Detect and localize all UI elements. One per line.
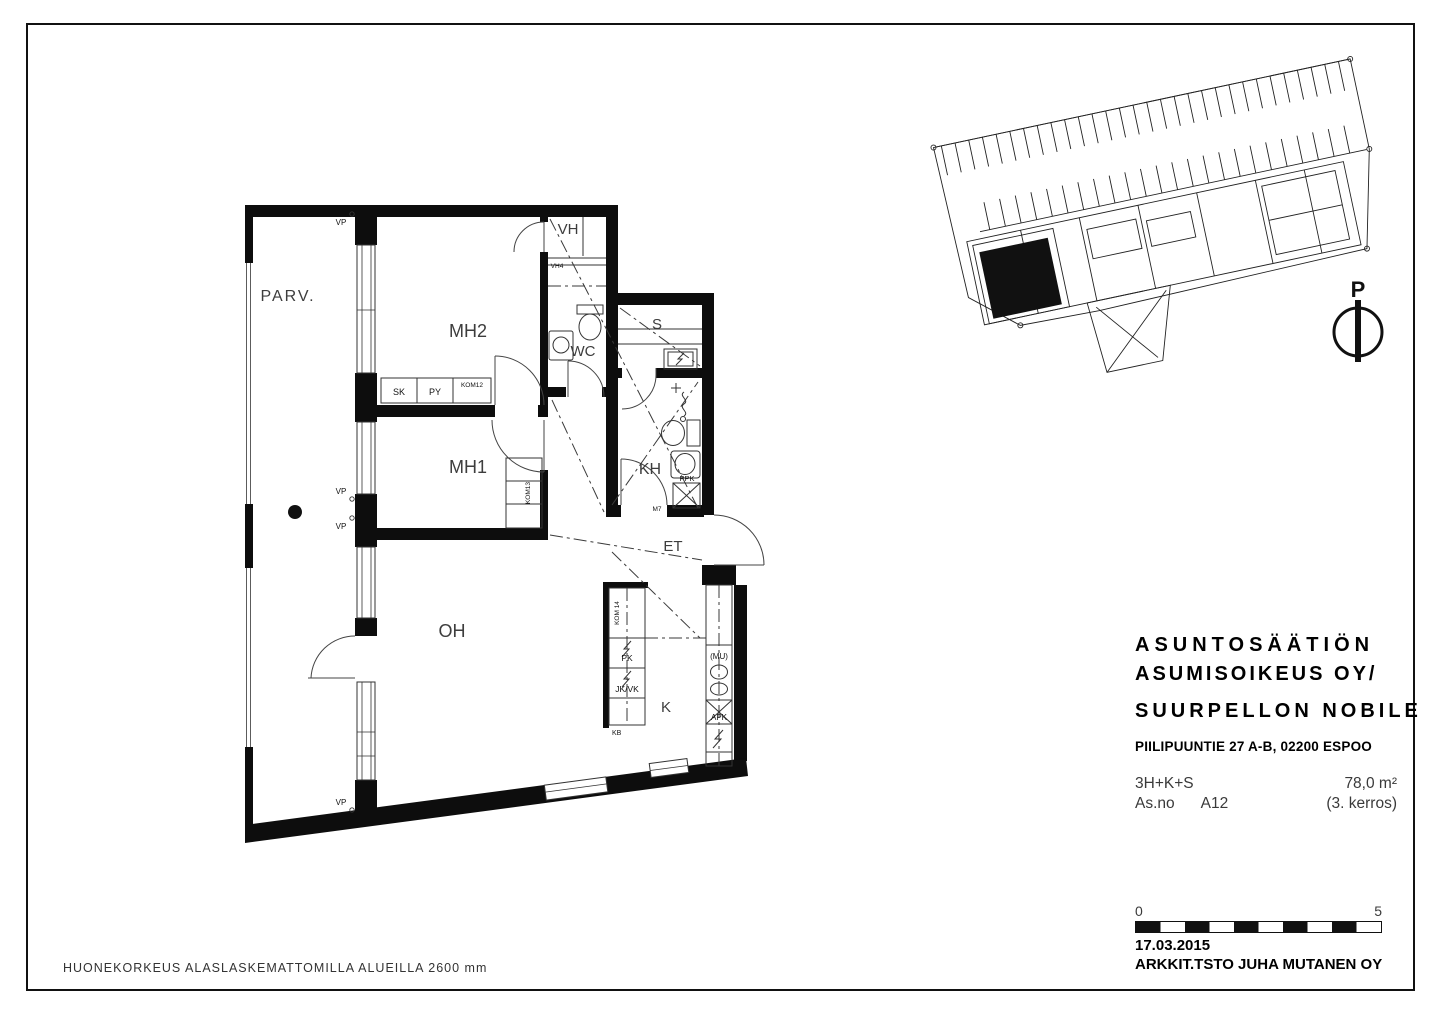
apartment-no-value: A12 bbox=[1201, 794, 1229, 814]
vp-label-3: VP bbox=[336, 522, 347, 531]
apartment-type: 3H+K+S bbox=[1135, 774, 1194, 794]
windows bbox=[357, 245, 689, 800]
apartment-info: 3H+K+S 78,0 m² As.no A12 (3. kerros) bbox=[1135, 774, 1397, 814]
vp-label-2: VP bbox=[336, 487, 347, 496]
pk-label: PK bbox=[621, 653, 633, 663]
ceiling-height-note: HUONEKORKEUS ALASLASKEMATTOMILLA ALUEILL… bbox=[63, 961, 487, 975]
scale-end-label: 5 bbox=[1374, 903, 1382, 919]
scale-start-label: 0 bbox=[1135, 903, 1143, 919]
project-address: PIILIPUUNTIE 27 A-B, 02200 ESPOO bbox=[1135, 739, 1397, 754]
drawing-stamp: 17.03.2015 ARKKIT.TSTO JUHA MUTANEN OY bbox=[1135, 936, 1382, 974]
highlighted-apartment bbox=[979, 238, 1062, 319]
room-label-oh: OH bbox=[439, 621, 466, 641]
room-label-wc: WC bbox=[571, 343, 596, 360]
room-label-mh2: MH2 bbox=[449, 321, 487, 341]
company-name-line2: ASUMISOIKEUS OY/ bbox=[1135, 660, 1397, 689]
drawing-date: 17.03.2015 bbox=[1135, 936, 1382, 955]
ppk-label: PPK bbox=[679, 474, 694, 483]
scale-bar-graphic bbox=[1135, 921, 1382, 933]
scale-bar: 0 5 bbox=[1135, 903, 1382, 933]
kom13-label: KOM13 bbox=[525, 482, 532, 504]
walls bbox=[245, 205, 748, 843]
apartment-area: 78,0 m² bbox=[1344, 774, 1397, 794]
jkvk-label: JK/VK bbox=[615, 684, 639, 694]
floor-plan-drawing: PARV. MH2 MH1 OH VH WC S KH ET K VP VP V… bbox=[0, 0, 1440, 1017]
apartment-no-label: As.no bbox=[1135, 794, 1175, 814]
room-label-s: S bbox=[652, 316, 662, 333]
apartment-floor: (3. kerros) bbox=[1326, 794, 1397, 814]
vh4-label: VH4 bbox=[551, 263, 564, 270]
room-label-parv: PARV. bbox=[260, 288, 315, 305]
project-name: SUURPELLON NOBILE bbox=[1135, 700, 1397, 723]
room-label-et: ET bbox=[663, 538, 682, 555]
room-label-vh: VH bbox=[558, 221, 579, 238]
north-arrow: P bbox=[1334, 277, 1382, 362]
north-arrow-label: P bbox=[1351, 277, 1366, 302]
m7-label: M7 bbox=[652, 506, 661, 513]
sk-label: SK bbox=[393, 387, 405, 397]
drawing-sheet: { "page": { "footer_note": "HUONEKORKEUS… bbox=[0, 0, 1440, 1017]
apk-label: APK bbox=[711, 713, 728, 722]
vp-label-1: VP bbox=[336, 218, 347, 227]
vp-label-4: VP bbox=[336, 798, 347, 807]
room-label-k: K bbox=[661, 699, 671, 716]
kom12-label: KOM12 bbox=[461, 382, 483, 389]
north-arrow-needle bbox=[1355, 300, 1361, 362]
company-name-line1: ASUNTOSÄÄTIÖN bbox=[1135, 631, 1397, 660]
kom14-label: KOM 14 bbox=[614, 601, 621, 625]
room-label-kh: KH bbox=[639, 461, 661, 478]
parking-row-1 bbox=[941, 61, 1344, 175]
kb-label: KB bbox=[612, 730, 622, 737]
room-label-mh1: MH1 bbox=[449, 457, 487, 477]
door-swings bbox=[308, 222, 764, 678]
site-plan bbox=[931, 56, 1406, 398]
py-label: PY bbox=[429, 387, 441, 397]
architect-name: ARKKIT.TSTO JUHA MUTANEN OY bbox=[1135, 955, 1382, 974]
parking-row-2 bbox=[984, 126, 1350, 230]
title-block: ASUNTOSÄÄTIÖN ASUMISOIKEUS OY/ SUURPELLO… bbox=[1135, 631, 1397, 814]
mu-label: (MU) bbox=[710, 652, 728, 661]
